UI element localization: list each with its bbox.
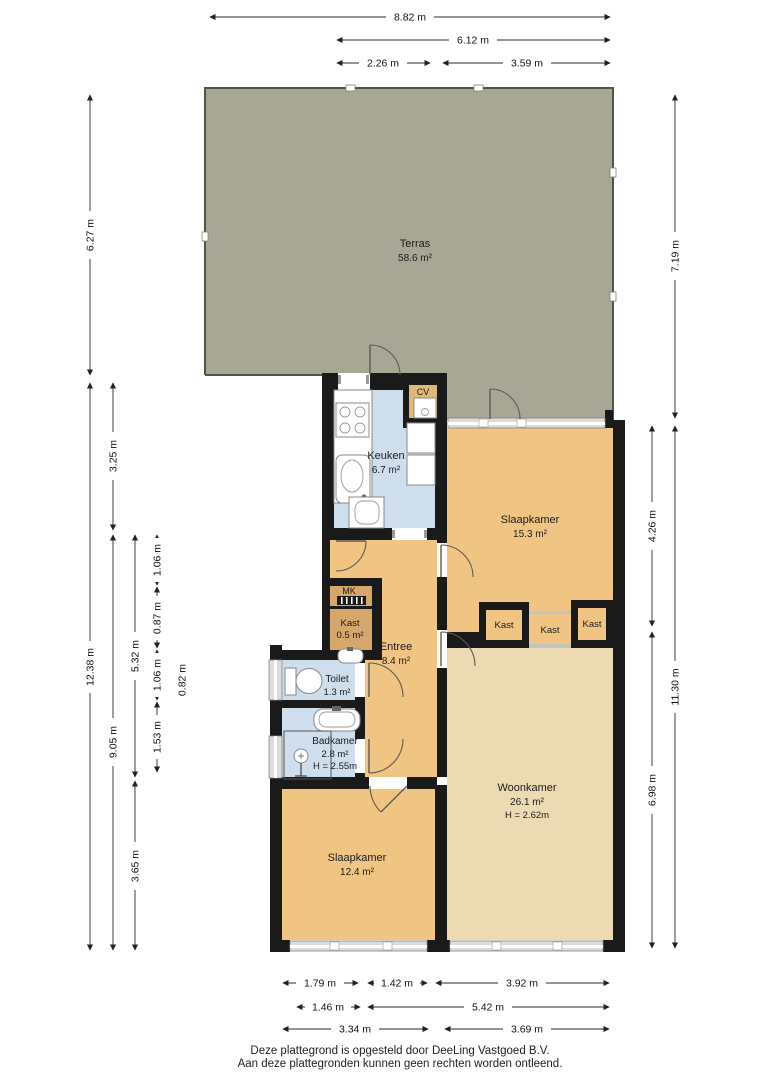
outer-wall-bottom [427, 940, 450, 952]
cv-label: CV [417, 387, 430, 397]
entree-area: 8.4 m² [382, 656, 411, 667]
dim-left-1: 3.25 m [107, 432, 120, 480]
terras-post [202, 232, 208, 241]
dim-left-0: 6.27 m [84, 211, 97, 259]
dim-left-7: 1.06 m [151, 653, 164, 697]
svg-text:8.82 m: 8.82 m [394, 12, 426, 24]
dim-right-3: 6.98 m [646, 766, 659, 814]
window-glass [448, 422, 605, 425]
door-jamb [424, 530, 427, 538]
svg-text:0.87 m: 0.87 m [152, 602, 164, 634]
terras-post [610, 168, 616, 177]
entree-label: Entree [380, 641, 412, 653]
dim-right-1: 4.26 m [646, 502, 659, 550]
svg-text:1.79 m: 1.79 m [304, 978, 336, 990]
keuken-label: Keuken [367, 450, 404, 462]
svg-text:5.32 m: 5.32 m [130, 640, 142, 672]
tap-icon [332, 706, 341, 711]
wall-segment [437, 577, 447, 630]
wall-segment [330, 606, 372, 609]
window-tick [553, 942, 562, 950]
wall-segment [370, 373, 403, 390]
dim-left-8: 0.82 m [176, 658, 189, 702]
svg-text:9.05 m: 9.05 m [108, 726, 120, 758]
svg-text:5.42 m: 5.42 m [472, 1002, 504, 1014]
outer-wall-left [270, 778, 282, 952]
wall-segment [437, 668, 447, 777]
dim-left-4: 9.05 m [107, 718, 120, 766]
dim-right-0: 7.19 m [669, 232, 682, 280]
svg-text:6.12 m: 6.12 m [457, 35, 489, 47]
kast-midden-slider-door [529, 611, 571, 614]
dim-top-0: 8.82 m [386, 11, 434, 24]
svg-text:3.69 m: 3.69 m [511, 1024, 543, 1036]
dim-left-5: 1.06 m [151, 538, 164, 582]
floorplan-page: Terras 58.6 m² Keuken 6.7 m² CV Slaapkam… [0, 0, 764, 1080]
woonkamer-area: 26.1 m² [510, 797, 545, 808]
svg-text:1.06 m: 1.06 m [152, 659, 164, 691]
svg-text:7.19 m: 7.19 m [670, 240, 682, 272]
dim-right-2: 11.30 m [669, 661, 682, 713]
dim-top-2: 2.26 m [359, 57, 407, 70]
dim-left-6: 0.87 m [151, 596, 164, 640]
window-glass [450, 945, 603, 948]
terras-post [346, 85, 355, 91]
dim-left-3: 5.32 m [129, 632, 142, 680]
toilet-area: 1.3 m² [324, 687, 351, 698]
kitchen-cabinet [407, 455, 435, 485]
dim-bottom-4: 5.42 m [464, 1001, 512, 1014]
kast-rechts-label: Kast [582, 619, 601, 630]
kast-midden-label: Kast [540, 625, 559, 636]
toilet-tank-icon [285, 668, 296, 695]
door-jamb [338, 375, 341, 384]
kast-links-label: Kast [494, 620, 513, 631]
opening-slaapkamer-onder [369, 777, 407, 789]
opening-keuken-entree [392, 528, 427, 540]
dim-bottom-1: 1.42 m [374, 977, 420, 990]
svg-text:3.92 m: 3.92 m [506, 978, 538, 990]
wall-segment [322, 540, 330, 660]
slaapkamer-boven-label: Slaapkamer [501, 514, 560, 526]
badkamer-label: Badkamer [312, 736, 358, 747]
svg-text:11.30 m: 11.30 m [670, 668, 682, 705]
terras-area: 58.6 m² [398, 253, 433, 264]
terras-post [610, 292, 616, 301]
outer-wall-left [270, 645, 282, 660]
svg-text:1.06 m: 1.06 m [152, 544, 164, 576]
door-jamb [392, 530, 395, 538]
svg-text:3.59 m: 3.59 m [511, 58, 543, 70]
slaapkamer-onder-area: 12.4 m² [340, 867, 375, 878]
window-glass [274, 736, 277, 778]
badkamer-area: 2.8 m² [322, 749, 349, 760]
mk-label: MK [342, 586, 356, 596]
kast-klein-label: Kast [340, 618, 359, 629]
woonkamer-height: H = 2.62m [505, 810, 549, 821]
kitchen-cabinet [407, 423, 435, 453]
svg-text:1.46 m: 1.46 m [312, 1002, 344, 1014]
outer-wall-bottom [603, 940, 625, 952]
svg-text:2.26 m: 2.26 m [367, 58, 399, 70]
svg-text:0.82 m: 0.82 m [177, 664, 189, 696]
wall-segment [322, 528, 392, 540]
door-jamb [366, 375, 369, 384]
wall-segment [605, 410, 613, 428]
wall-segment [322, 373, 334, 540]
outer-wall-right [613, 420, 625, 952]
svg-text:4.26 m: 4.26 m [647, 510, 659, 542]
opening-keuken-terras [338, 373, 370, 390]
footer-line-2: Aan deze plattegronden kunnen geen recht… [238, 1058, 563, 1070]
meter-stripe [341, 597, 343, 604]
stove-icon [336, 403, 369, 437]
terras-floor-extension [447, 375, 613, 420]
dim-bottom-0: 1.79 m [296, 977, 344, 990]
toilet-label: Toilet [325, 674, 349, 685]
svg-text:6.27 m: 6.27 m [85, 219, 97, 251]
meter-stripe [361, 597, 363, 604]
dim-top-1: 6.12 m [449, 34, 497, 47]
slaapkamer-onder-floor [282, 789, 435, 940]
kast-midden-slider-door [529, 644, 571, 648]
terras-floor [205, 88, 613, 375]
tap-icon [347, 647, 353, 651]
window-tick [383, 942, 392, 950]
entree-floor-north [330, 540, 437, 578]
svg-text:12.38 m: 12.38 m [85, 648, 97, 686]
window-glass [274, 660, 277, 700]
dim-left-2: 12.38 m [84, 641, 97, 693]
dim-bottom-6: 3.69 m [503, 1023, 551, 1036]
slaapkamer-onder-label: Slaapkamer [328, 852, 387, 864]
window-tick [517, 419, 526, 427]
wall-segment [435, 785, 447, 942]
window-glass [290, 945, 427, 948]
wall-segment [282, 700, 355, 708]
woonkamer-label: Woonkamer [497, 782, 556, 794]
meter-stripe [351, 597, 353, 604]
dim-bottom-2: 3.92 m [498, 977, 546, 990]
dim-bottom-5: 3.34 m [331, 1023, 379, 1036]
svg-text:3.25 m: 3.25 m [108, 440, 120, 472]
outer-wall-left [270, 700, 282, 736]
window-tick [492, 942, 501, 950]
window-tick [479, 419, 488, 427]
footer-line-1: Deze plattegrond is opgesteld door DeeLi… [250, 1045, 549, 1057]
window-tick [330, 942, 339, 950]
terras-post [474, 85, 483, 91]
opening-woonkamer [437, 630, 447, 668]
svg-text:3.34 m: 3.34 m [339, 1024, 371, 1036]
meter-stripe [356, 597, 358, 604]
kast-klein-area: 0.5 m² [337, 630, 364, 641]
wall-segment [437, 428, 447, 543]
entree-floor-south [365, 660, 437, 777]
outer-wall-bottom [270, 940, 290, 952]
toilet-bowl-icon [296, 669, 322, 694]
dim-top-3: 3.59 m [503, 57, 551, 70]
woonkamer-floor [447, 648, 613, 940]
wall-segment [407, 777, 437, 789]
slaapkamer-boven-area: 15.3 m² [513, 529, 548, 540]
hand-basin-icon [338, 649, 363, 663]
footer: Deze plattegrond is opgesteld door DeeLi… [238, 1045, 563, 1070]
dim-left-10: 3.65 m [129, 842, 142, 890]
keuken-area: 6.7 m² [372, 465, 401, 476]
opening-toilet [355, 663, 365, 697]
dim-left-9: 1.53 m [151, 715, 164, 759]
opening-slaapkamer-boven [437, 543, 447, 577]
svg-text:1.53 m: 1.53 m [152, 721, 164, 753]
boiler-icon [414, 398, 436, 418]
wall-segment [330, 578, 372, 586]
badkamer-height: H = 2.55m [313, 761, 357, 772]
svg-text:6.98 m: 6.98 m [647, 774, 659, 806]
svg-text:1.42 m: 1.42 m [381, 978, 413, 990]
wall-segment [322, 373, 338, 390]
dim-bottom-3: 1.46 m [305, 1001, 351, 1014]
floorplan-svg: Terras 58.6 m² Keuken 6.7 m² CV Slaapkam… [0, 0, 764, 1080]
meter-stripe [346, 597, 348, 604]
terras-label: Terras [400, 238, 431, 250]
svg-text:3.65 m: 3.65 m [130, 850, 142, 882]
